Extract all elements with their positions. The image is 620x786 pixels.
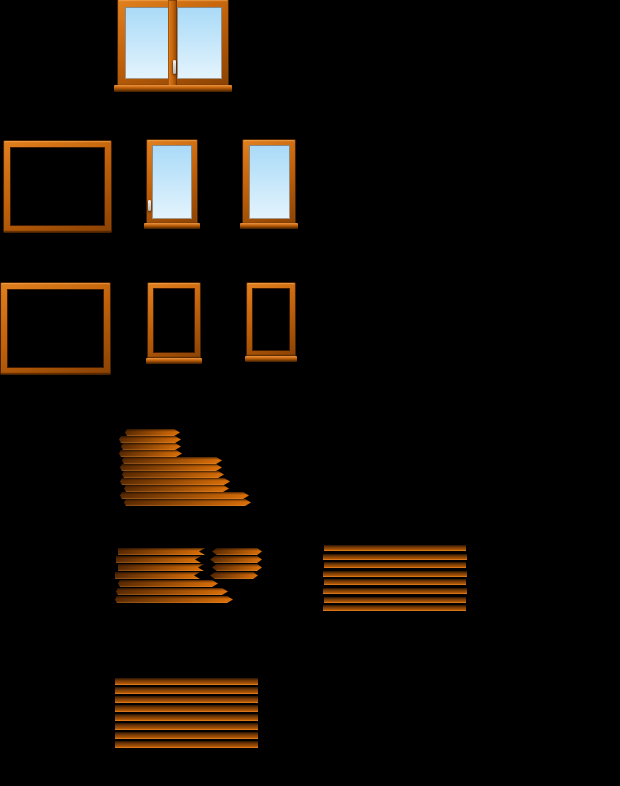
window-sill xyxy=(146,358,202,364)
plank xyxy=(115,741,258,748)
plank xyxy=(120,478,230,485)
single-casement-window-b[interactable] xyxy=(240,140,298,229)
plank xyxy=(122,471,224,478)
plank xyxy=(120,492,249,499)
glass-pane xyxy=(249,145,290,219)
frame-opening xyxy=(7,289,104,368)
plank xyxy=(124,485,229,492)
stepped-plank-pile[interactable] xyxy=(115,429,249,506)
plank-stack-right[interactable] xyxy=(323,545,467,611)
plank-stack-bottom[interactable] xyxy=(115,678,258,748)
plank xyxy=(125,429,180,436)
plank xyxy=(324,597,466,603)
plank xyxy=(323,571,467,577)
plank xyxy=(124,499,251,506)
plank xyxy=(115,723,258,730)
plank xyxy=(115,572,200,579)
plank xyxy=(115,678,258,685)
plank xyxy=(210,572,258,579)
plank xyxy=(323,554,467,560)
double-casement-window[interactable] xyxy=(114,0,232,92)
empty-sash-frame-b[interactable] xyxy=(245,283,297,362)
frame-opening xyxy=(252,288,290,351)
plank xyxy=(119,436,181,443)
empty-window-frame-large-a[interactable] xyxy=(4,141,111,232)
glass-pane xyxy=(152,145,192,219)
empty-sash-frame-a[interactable] xyxy=(146,282,202,364)
plank xyxy=(115,696,258,703)
short-plank-group[interactable] xyxy=(210,548,262,579)
frame-opening xyxy=(153,288,195,353)
plank xyxy=(115,705,258,712)
plank xyxy=(118,564,204,571)
plank xyxy=(115,714,258,721)
window-sill xyxy=(114,85,232,92)
window-handle xyxy=(173,60,176,74)
window-handle xyxy=(148,200,151,211)
plank xyxy=(116,588,228,595)
plank xyxy=(115,687,258,694)
plank xyxy=(324,545,466,551)
plank xyxy=(122,457,222,464)
plank xyxy=(120,464,222,471)
plank xyxy=(119,450,182,457)
plank xyxy=(116,556,201,563)
window-sill xyxy=(240,223,298,229)
sprite-sheet-scene xyxy=(0,0,620,786)
plank xyxy=(323,588,467,594)
glass-pane xyxy=(125,7,169,79)
plank xyxy=(118,548,205,555)
plank xyxy=(115,596,233,603)
window-sill xyxy=(144,223,200,229)
plank xyxy=(121,443,181,450)
glass-pane xyxy=(177,7,222,79)
plank xyxy=(212,548,262,555)
plank xyxy=(212,564,262,571)
plank xyxy=(324,579,466,585)
window-sill xyxy=(245,356,297,362)
plank xyxy=(115,732,258,739)
frame-opening xyxy=(10,147,105,226)
plank xyxy=(324,562,466,568)
plank xyxy=(323,605,466,611)
plank xyxy=(118,580,218,587)
single-casement-window-a[interactable] xyxy=(144,140,200,229)
plank xyxy=(210,556,262,563)
empty-window-frame-large-b[interactable] xyxy=(1,283,110,374)
